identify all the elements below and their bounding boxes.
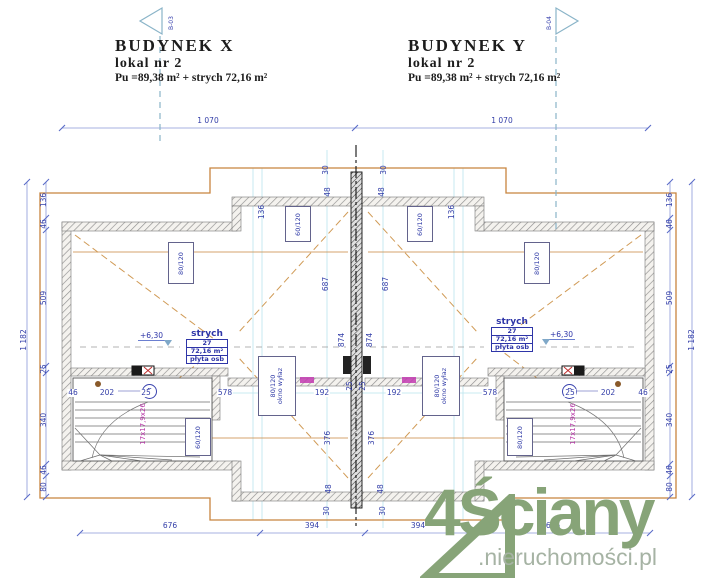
dimension-label: 46	[40, 219, 48, 229]
dimension-label: 687	[322, 277, 330, 291]
dimension-label: 136	[258, 205, 266, 219]
floorplan-page: BUDYNEK X lokal nr 2 Pu =89,38 m² + stry…	[0, 0, 717, 578]
window-size-text: 80/120	[534, 252, 541, 275]
dimension-label: 509	[666, 291, 674, 305]
dimension-label: 340	[40, 413, 48, 427]
dimension-label: 48	[378, 187, 386, 197]
dimension-label: 394	[305, 522, 319, 530]
dimension-label: 48	[377, 484, 385, 494]
window-size-text: 80/120	[178, 252, 185, 275]
dimension-label: 1 070	[491, 117, 512, 125]
dimension-label: 136	[448, 205, 456, 219]
dimension-label: 376	[368, 431, 376, 445]
window-label: 80/120	[524, 242, 550, 284]
dimension-label: 30	[322, 165, 330, 175]
dimension-label: 30	[379, 506, 387, 516]
window-label: 80/120okno wyłaz	[258, 356, 296, 416]
window-label: 80/120okno wyłaz	[422, 356, 460, 416]
window-label: 80/120	[168, 242, 194, 284]
window-size-text: 60/120	[195, 426, 202, 449]
window-size-text: 80/120okno wyłaz	[434, 368, 448, 404]
dimension-label: 25	[359, 381, 367, 391]
dimension-label: 376	[324, 431, 332, 445]
dimension-label: 25	[40, 364, 48, 374]
dimension-label: 578	[482, 389, 498, 397]
dimension-label: 48	[325, 484, 333, 494]
dimension-label: 30	[380, 165, 388, 175]
dimension-label: 136	[666, 193, 674, 207]
window-size-text: 80/120	[517, 426, 524, 449]
dimension-label: 687	[382, 277, 390, 291]
dimension-label: 30	[323, 506, 331, 516]
window-label: 60/120	[285, 206, 311, 242]
dimension-label: 46	[666, 219, 674, 229]
window-size-text: 60/120	[295, 213, 302, 236]
dimension-label: 25	[666, 364, 674, 374]
dimension-label: 25	[140, 389, 152, 397]
dimension-label: 25	[346, 381, 354, 391]
plan-labels-layer: 1 0701 0706763943946761 1821364650925340…	[0, 0, 717, 578]
dimension-label: 46	[637, 389, 649, 397]
dimension-label: 1 182	[688, 329, 696, 350]
dimension-label: 1 070	[197, 117, 218, 125]
dimension-label: 202	[600, 389, 616, 397]
dimension-label: 192	[386, 389, 402, 397]
dimension-label: 46	[67, 389, 79, 397]
dimension-label: 578	[217, 389, 233, 397]
dimension-label: 136	[40, 193, 48, 207]
window-label: 60/120	[185, 418, 211, 456]
dimension-label: 46	[666, 465, 674, 475]
dimension-label: 509	[40, 291, 48, 305]
dimension-label: 46	[40, 465, 48, 475]
window-size-text: 80/120okno wyłaz	[270, 368, 284, 404]
dimension-label: 25	[564, 389, 576, 397]
dimension-label: 340	[666, 413, 674, 427]
window-label: 60/120	[407, 206, 433, 242]
dimension-label: 80	[666, 482, 674, 492]
dimension-label: 676	[546, 522, 560, 530]
dimension-label: 676	[163, 522, 177, 530]
dimension-label: 1 182	[20, 329, 28, 350]
dimension-label: 80	[40, 482, 48, 492]
dimension-label: 394	[411, 522, 425, 530]
dimension-label: 48	[324, 187, 332, 197]
dimension-label: 202	[99, 389, 115, 397]
dimension-label: 874	[338, 333, 346, 347]
window-size-text: 60/120	[417, 213, 424, 236]
dimension-label: 192	[314, 389, 330, 397]
window-label: 80/120	[507, 418, 533, 456]
dimension-label: 874	[366, 333, 374, 347]
